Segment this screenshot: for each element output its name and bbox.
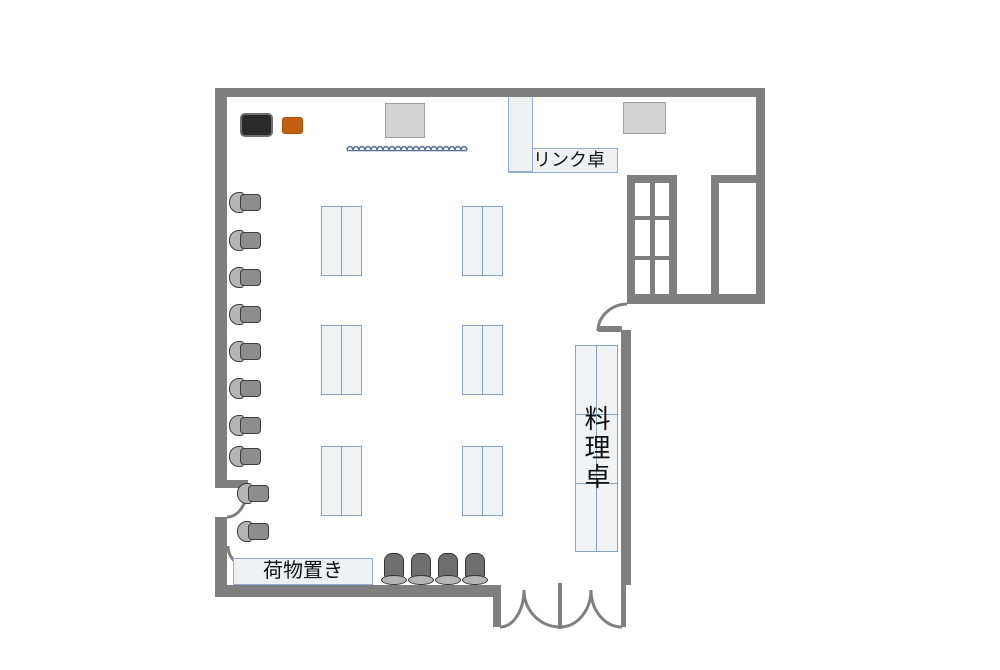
chair-bottom-4 xyxy=(462,553,489,587)
entrance-door-arc-1 xyxy=(500,590,524,627)
equipment-black-box xyxy=(240,113,273,137)
chair-bottom-1 xyxy=(381,553,408,587)
floor-plan: ドリンク卓 料理卓 荷物置き xyxy=(0,0,1000,670)
chair-seat xyxy=(240,306,261,323)
wall-top xyxy=(215,88,765,97)
drink-table xyxy=(508,90,533,172)
chair-left-9 xyxy=(237,483,271,505)
chair-seat xyxy=(408,575,434,585)
chair-seat xyxy=(240,269,261,286)
entrance-door-arc-2 xyxy=(524,590,560,627)
chair-seat xyxy=(240,417,261,434)
table-divider xyxy=(482,326,484,394)
wall-left-upper xyxy=(215,88,227,488)
chair-left-8 xyxy=(229,446,263,468)
squiggle-line xyxy=(347,147,467,150)
chair-seat xyxy=(462,575,488,585)
chair-bottom-3 xyxy=(435,553,462,587)
chair-seat xyxy=(435,575,461,585)
table-divider xyxy=(341,447,343,515)
entrance-door-arc-3 xyxy=(560,590,591,627)
guest-table-3 xyxy=(321,325,362,395)
cook-table: 料理卓 xyxy=(575,345,618,552)
guest-table-4 xyxy=(462,325,503,395)
table-divider xyxy=(341,326,343,394)
table-divider xyxy=(482,447,484,515)
chair-left-10 xyxy=(237,521,271,543)
chair-left-6 xyxy=(229,378,263,400)
wall-right-outer xyxy=(756,88,765,304)
chair-seat xyxy=(240,194,261,211)
chair-left-2 xyxy=(229,230,263,252)
entrance-right-jamb xyxy=(621,583,626,627)
cook-table-label: 料理卓 xyxy=(576,346,617,551)
chair-left-4 xyxy=(229,304,263,326)
chair-seat xyxy=(248,523,269,540)
window-muntin-vertical xyxy=(650,183,655,296)
guest-table-1 xyxy=(321,206,362,276)
chair-seat xyxy=(381,575,407,585)
chair-seat xyxy=(240,232,261,249)
chair-left-1 xyxy=(229,192,263,214)
chair-seat xyxy=(240,380,261,397)
window-muntin-horizontal xyxy=(635,216,669,220)
entrance-center-post xyxy=(558,583,562,629)
gray-square-left xyxy=(385,103,425,138)
gray-square-right xyxy=(623,102,666,134)
entrance-door-arc-4 xyxy=(591,590,622,627)
window-frame xyxy=(627,175,677,304)
guest-table-2 xyxy=(462,206,503,276)
equipment-orange-box xyxy=(282,117,303,134)
chair-seat xyxy=(240,343,261,360)
wall-right-lower xyxy=(621,330,631,585)
wall-window-bottom-band xyxy=(627,294,765,304)
guest-table-5 xyxy=(321,446,362,516)
chair-seat xyxy=(248,485,269,502)
door-leaf-right xyxy=(598,326,622,332)
table-divider xyxy=(482,207,484,275)
chair-left-3 xyxy=(229,267,263,289)
window-muntin-horizontal xyxy=(635,256,669,260)
guest-table-6 xyxy=(462,446,503,516)
chair-left-5 xyxy=(229,341,263,363)
baggage-area-label: 荷物置き xyxy=(233,558,373,585)
chair-seat xyxy=(240,448,261,465)
table-divider xyxy=(341,207,343,275)
chair-left-7 xyxy=(229,415,263,437)
chair-bottom-2 xyxy=(408,553,435,587)
